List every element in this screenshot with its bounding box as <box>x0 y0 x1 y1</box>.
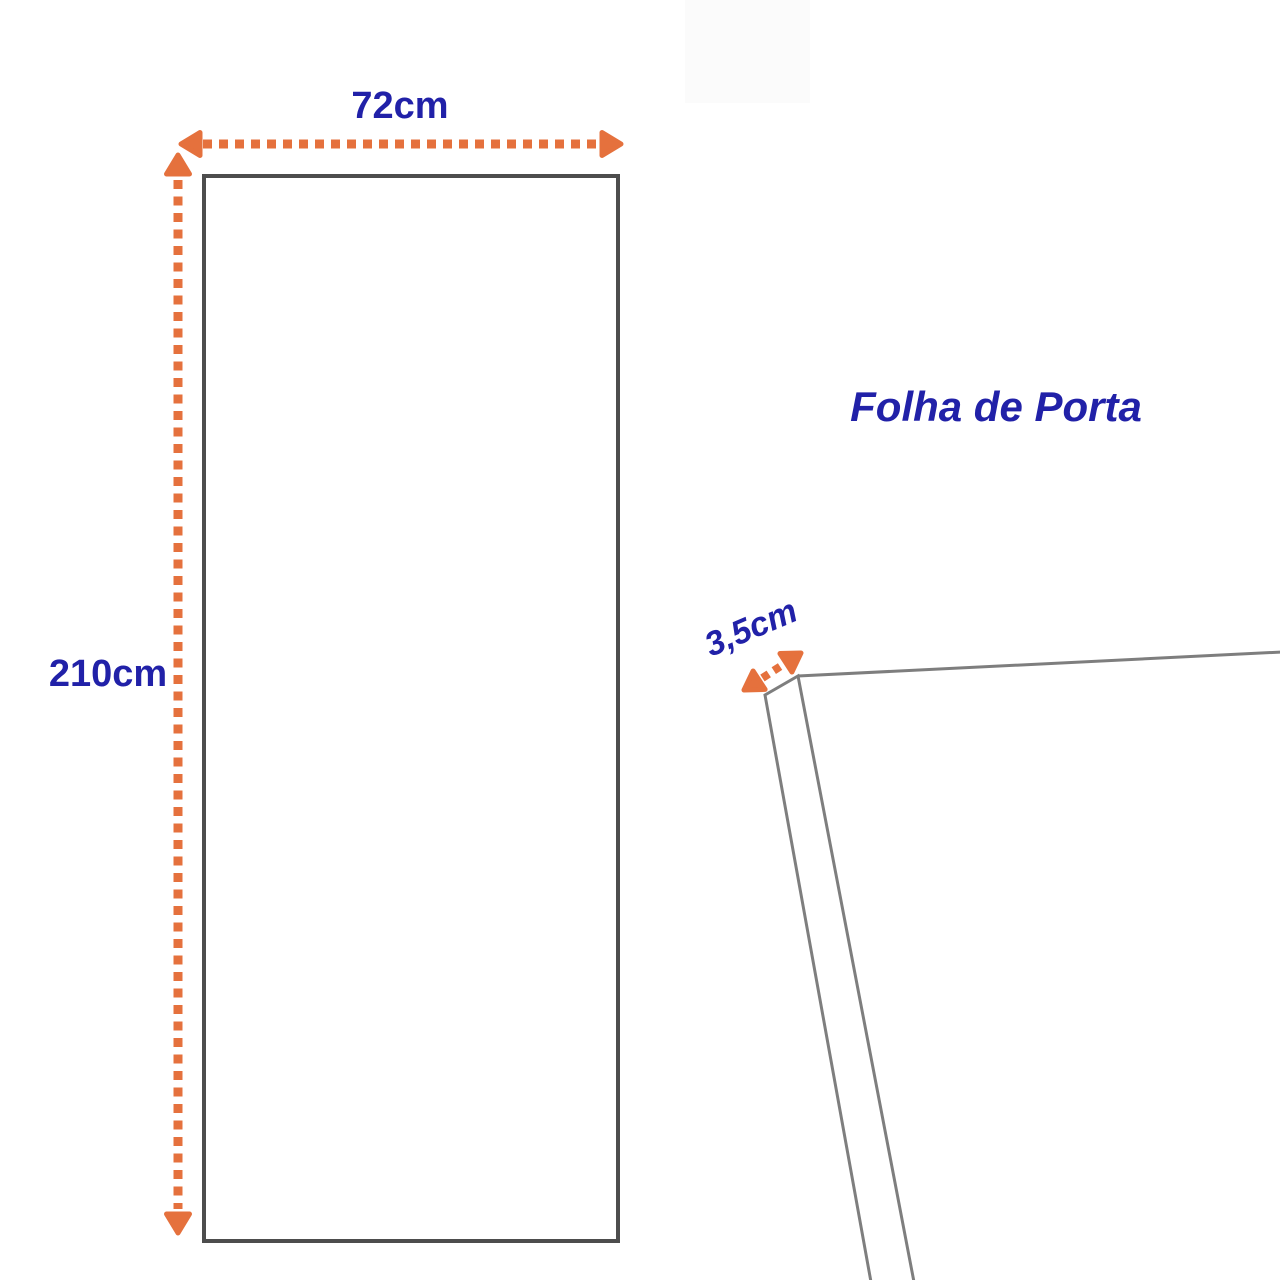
width-label: 72cm <box>351 87 448 125</box>
arrowhead-right-icon <box>602 133 621 156</box>
arrowhead-up-icon <box>167 155 190 174</box>
door-dimensions-diagram: 72cm 210cm Folha de Porta 3,5cm <box>0 0 1280 1280</box>
height-label: 210cm <box>49 655 167 693</box>
width-dimension-arrow <box>181 133 621 156</box>
door-edge-perspective <box>765 652 1280 1280</box>
door-edge-strip <box>765 676 914 1280</box>
thickness-dotted-line <box>762 663 785 678</box>
arrowhead-right-icon <box>780 644 807 672</box>
arrowhead-left-icon <box>181 133 200 156</box>
door-front-outline <box>204 176 618 1241</box>
diagram-drawing <box>0 0 1280 1280</box>
faint-watermark <box>685 0 810 103</box>
arrowhead-down-icon <box>167 1214 190 1233</box>
door-top-edge-line <box>798 652 1280 676</box>
height-dimension-arrow <box>167 155 190 1233</box>
diagram-title: Folha de Porta <box>850 386 1142 428</box>
